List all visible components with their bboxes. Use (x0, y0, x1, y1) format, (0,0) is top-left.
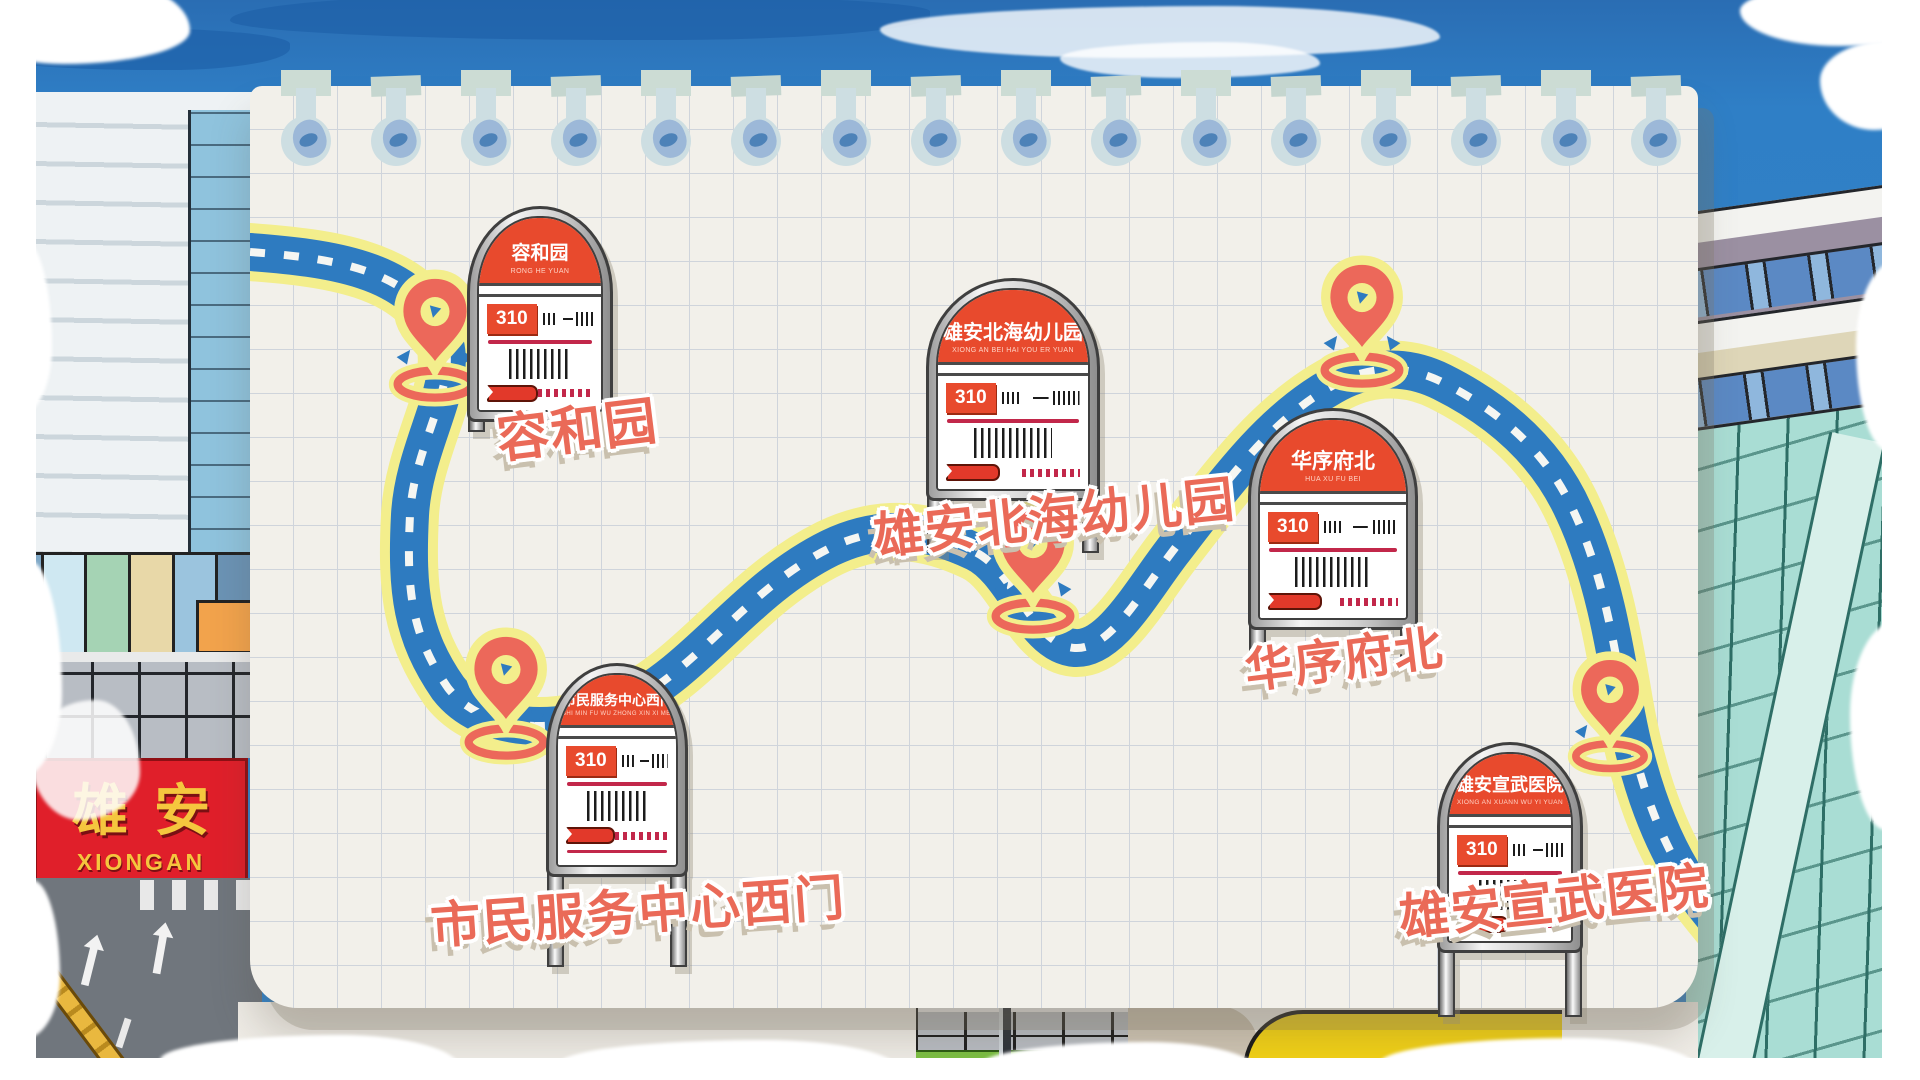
red-arrow-banner (946, 464, 1000, 481)
red-arrow-banner (566, 827, 615, 844)
sign-header: 容和园 RONG HE YUAN (479, 218, 601, 286)
sign-separator (558, 728, 676, 739)
timetable-barcode (509, 349, 570, 379)
stop-name-cn: 容和园 (483, 244, 597, 265)
timetable-barcode (622, 753, 668, 769)
stop-name-pinyin: XIONG AN BEI HAI YOU ER YUAN (942, 347, 1084, 354)
crosswalk (140, 880, 262, 910)
route-number-badge: 310 (946, 383, 996, 413)
grunge-border-right (1882, 0, 1920, 1080)
map-pin-huaxu (1310, 254, 1414, 394)
sky-stroke (230, 0, 930, 40)
sign-header: 雄安宣武医院 XIONG AN XUANN WU YI YUAN (1449, 754, 1571, 817)
sign-header: 华序府北 HUA XU FU BEI (1260, 420, 1406, 494)
stop-name-cn: 雄安北海幼儿园 (942, 322, 1084, 344)
sign-leg (1438, 945, 1455, 1017)
red-divider (1269, 548, 1397, 552)
window-pane (87, 555, 131, 655)
map-pin-shimin (454, 626, 558, 766)
sign-header: 雄安北海幼儿园 XIONG AN BEI HAI YOU ER YUAN (938, 290, 1088, 365)
stop-name-pinyin: HUA XU FU BEI (1264, 476, 1402, 483)
red-divider (947, 419, 1079, 423)
red-divider (567, 850, 667, 853)
grunge-blob (30, 700, 140, 820)
sign-board: 310 (558, 739, 676, 865)
sign-frame: 雄安北海幼儿园 XIONG AN BEI HAI YOU ER YUAN 310 (926, 278, 1100, 501)
timetable-barcode (1295, 557, 1370, 587)
grunge-blob (1856, 260, 1920, 450)
timetable-barcode (587, 791, 646, 821)
red-arrow-banner (1268, 593, 1322, 610)
timetable-barcode (1513, 842, 1563, 858)
red-divider (567, 782, 667, 786)
stop-name-pinyin: XIONG AN XUANN WU YI YUAN (1453, 799, 1567, 806)
route-number-badge: 310 (487, 304, 537, 334)
bus-stop-sign-beihai: 雄安北海幼儿园 XIONG AN BEI HAI YOU ER YUAN 310 (926, 278, 1100, 501)
sign-board: 310 (938, 376, 1088, 489)
scene-xiongan-bus-route: 雄安 XIONGAN (0, 0, 1920, 1080)
sign-separator (938, 365, 1088, 376)
sign-leg (1565, 945, 1582, 1017)
stop-name-cn: 雄安宣武医院 (1453, 776, 1567, 796)
timetable-barcode (543, 311, 593, 327)
red-dots (1340, 598, 1398, 606)
stop-name-pinyin: RONG HE YUAN (483, 268, 597, 275)
route-number-badge: 310 (1268, 512, 1318, 542)
sign-header: 市民服务中心西门 SHI MIN FU WU ZHONG XIN XI MEN (558, 675, 676, 728)
sign-frame: 华序府北 HUA XU FU BEI 310 (1248, 408, 1418, 630)
sign-separator (1260, 494, 1406, 505)
timetable-barcode (1002, 390, 1080, 406)
stop-name-cn: 华序府北 (1264, 450, 1402, 473)
sign-separator (1449, 817, 1571, 828)
red-divider (488, 340, 592, 344)
window-pane (131, 555, 175, 655)
road-marking (116, 1018, 132, 1049)
sign-frame: 市民服务中心西门 SHI MIN FU WU ZHONG XIN XI MEN … (546, 663, 688, 877)
bus-stop-sign-shimin: 市民服务中心西门 SHI MIN FU WU ZHONG XIN XI MEN … (546, 663, 688, 877)
timetable-barcode (974, 428, 1052, 458)
route-number-badge: 310 (566, 746, 616, 776)
bus-stop-sign-huaxu: 华序府北 HUA XU FU BEI 310 (1248, 408, 1418, 630)
xiongan-banner-en: XIONGAN (77, 849, 205, 876)
stop-name-pinyin: SHI MIN FU WU ZHONG XIN XI MEN (562, 711, 672, 717)
sign-board: 310 (1260, 505, 1406, 618)
timetable-barcode (1324, 519, 1398, 535)
lane-arrow-icon (143, 916, 179, 980)
red-dots (615, 832, 668, 840)
stop-name-cn: 市民服务中心西门 (562, 693, 672, 708)
sign-separator (479, 286, 601, 297)
lane-arrow-icon (71, 928, 111, 993)
route-number-badge: 310 (1457, 835, 1507, 865)
